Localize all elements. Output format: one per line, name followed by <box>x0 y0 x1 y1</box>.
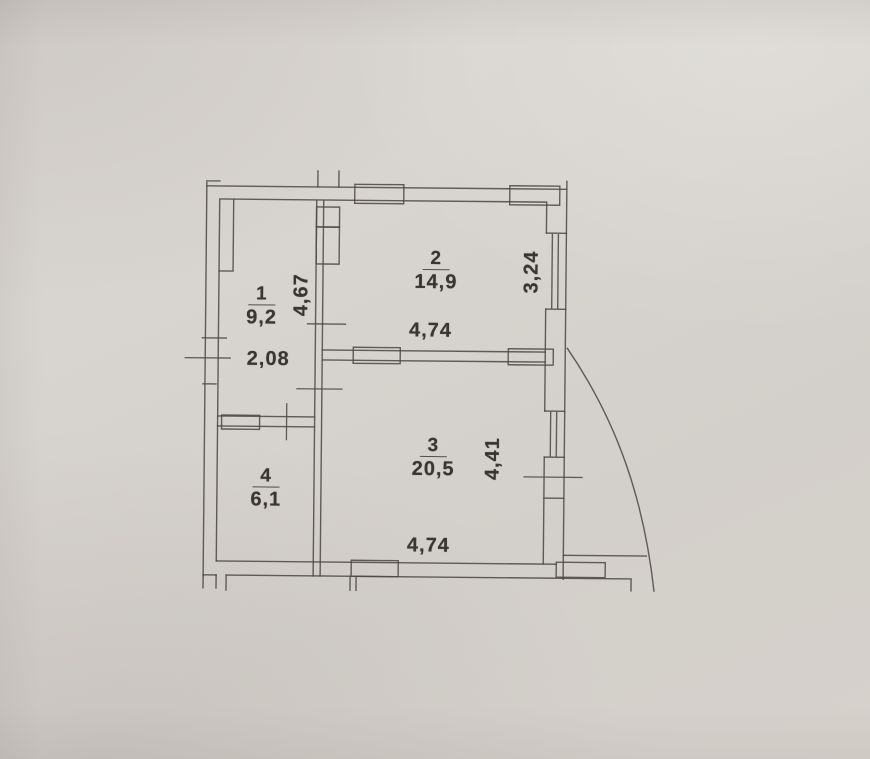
vent-duct <box>316 207 340 264</box>
room3-label: 3 20,5 <box>412 436 455 480</box>
room1-area: 9,2 <box>246 306 277 328</box>
dimension-ticks <box>184 323 583 478</box>
room1-number: 1 <box>248 284 276 305</box>
room2-label: 2 14,9 <box>414 249 457 293</box>
dim-room2-window-side: 3,24 <box>520 250 543 293</box>
room2-area: 14,9 <box>414 271 457 293</box>
dim-room3-width: 4,74 <box>407 534 450 557</box>
dim-room3-height: 4,41 <box>482 437 505 480</box>
floor-plan-drawing <box>0 0 870 759</box>
room1-label: 1 9,2 <box>246 284 277 328</box>
dim-room2-width: 4,74 <box>409 319 452 342</box>
floor-plan-photo: 1 9,2 2 14,9 3 20,5 4 6,1 4,67 2,08 4,74… <box>0 0 870 759</box>
room4-number: 4 <box>252 466 280 487</box>
floor-plan: 1 9,2 2 14,9 3 20,5 4 6,1 4,67 2,08 4,74… <box>0 0 870 759</box>
dim-room1-width: 2,08 <box>247 348 290 371</box>
room3-area: 20,5 <box>412 458 455 480</box>
room3-number: 3 <box>419 436 447 457</box>
room4-label: 4 6,1 <box>250 466 281 510</box>
window-room3 <box>544 411 565 498</box>
outer-walls <box>203 178 635 594</box>
balcony-arc <box>563 348 656 591</box>
room4-area: 6,1 <box>250 488 281 510</box>
wall-blocks <box>220 183 609 579</box>
window-room2 <box>546 233 567 309</box>
dim-rooms12-height: 4,67 <box>290 273 313 316</box>
room2-number: 2 <box>422 249 450 270</box>
